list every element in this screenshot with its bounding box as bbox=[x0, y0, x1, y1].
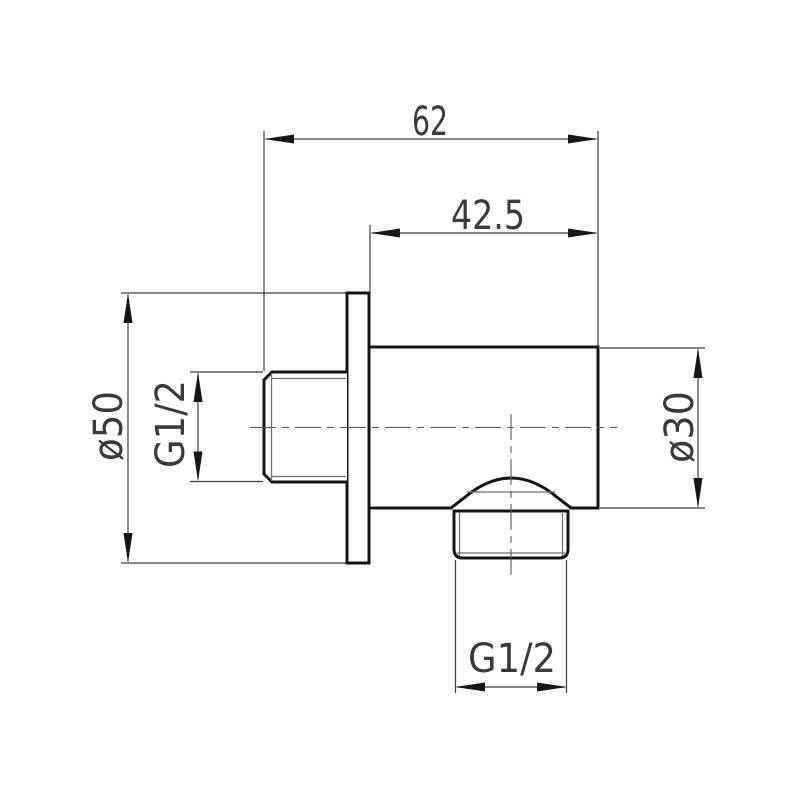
arrowhead-top bbox=[124, 293, 133, 323]
dimension-body-length: 42.5 bbox=[370, 193, 598, 292]
arrowhead-right bbox=[537, 683, 567, 692]
arrowhead-left bbox=[455, 683, 485, 692]
arrowhead-left bbox=[370, 229, 400, 238]
dimension-label-body-length: 42.5 bbox=[451, 193, 525, 239]
dimension-label-outlet-thread: G1/2 bbox=[468, 636, 556, 682]
arrowhead-bottom bbox=[694, 478, 703, 508]
dimension-outlet-thread: G1/2 bbox=[455, 560, 567, 693]
arrowhead-right bbox=[568, 229, 598, 238]
dimension-label-flange-diameter: ø50 bbox=[86, 391, 132, 461]
technical-drawing: 62 42.5 ø50 G1/2 ø30 bbox=[0, 0, 800, 800]
dimension-label-overall-width: 62 bbox=[412, 99, 448, 145]
arrowhead-bottom bbox=[124, 533, 133, 563]
dimension-label-body-diameter: ø30 bbox=[657, 391, 703, 463]
dimension-inlet-thread: G1/2 bbox=[148, 372, 263, 482]
drawing-page: 62 42.5 ø50 G1/2 ø30 bbox=[0, 0, 800, 800]
arrowhead-top bbox=[694, 348, 703, 378]
arrowhead-bottom bbox=[194, 452, 203, 482]
arrowhead-left bbox=[264, 135, 294, 144]
dimension-overall-width: 62 bbox=[264, 99, 598, 371]
arrowhead-right bbox=[568, 135, 598, 144]
arrowhead-top bbox=[194, 372, 203, 402]
dimension-label-inlet-thread: G1/2 bbox=[148, 380, 194, 468]
